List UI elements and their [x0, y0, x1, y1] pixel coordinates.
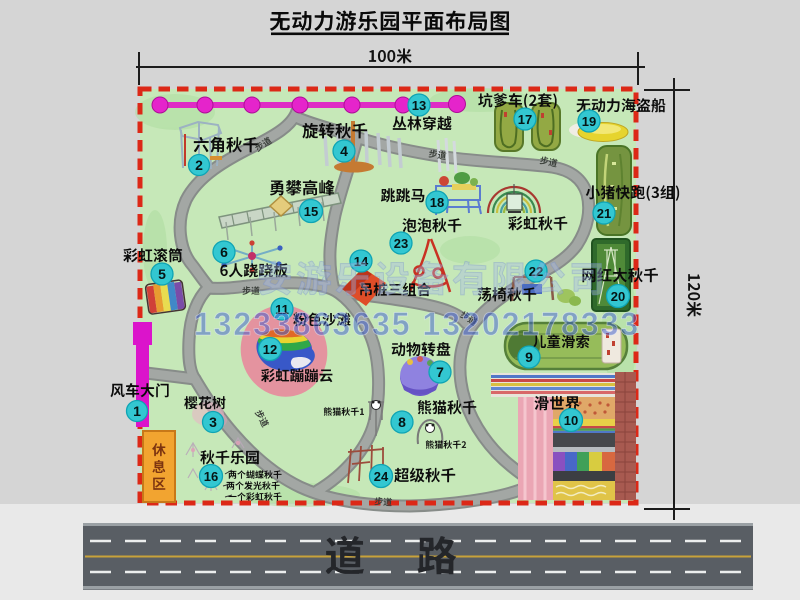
svg-text:24: 24: [374, 469, 389, 484]
svg-text:20: 20: [611, 289, 625, 304]
svg-text:23: 23: [394, 236, 408, 251]
svg-text:9: 9: [525, 349, 533, 365]
svg-text:2: 2: [195, 157, 203, 173]
svg-text:18: 18: [430, 195, 444, 210]
svg-text:19: 19: [582, 114, 596, 129]
svg-text:12: 12: [263, 342, 277, 357]
svg-text:21: 21: [597, 206, 611, 221]
svg-text:16: 16: [204, 469, 218, 484]
svg-text:17: 17: [518, 112, 532, 127]
svg-text:5: 5: [158, 266, 166, 282]
svg-text:15: 15: [304, 204, 318, 219]
svg-text:13: 13: [412, 98, 426, 113]
svg-text:1: 1: [133, 403, 141, 419]
svg-text:7: 7: [436, 364, 444, 380]
svg-text:4: 4: [340, 143, 348, 159]
svg-text:3: 3: [209, 414, 217, 430]
svg-text:10: 10: [564, 413, 578, 428]
svg-text:13233863635 13202178333: 13233863635 13202178333: [194, 306, 640, 342]
svg-text:6: 6: [220, 244, 228, 260]
svg-text:8: 8: [398, 414, 406, 430]
